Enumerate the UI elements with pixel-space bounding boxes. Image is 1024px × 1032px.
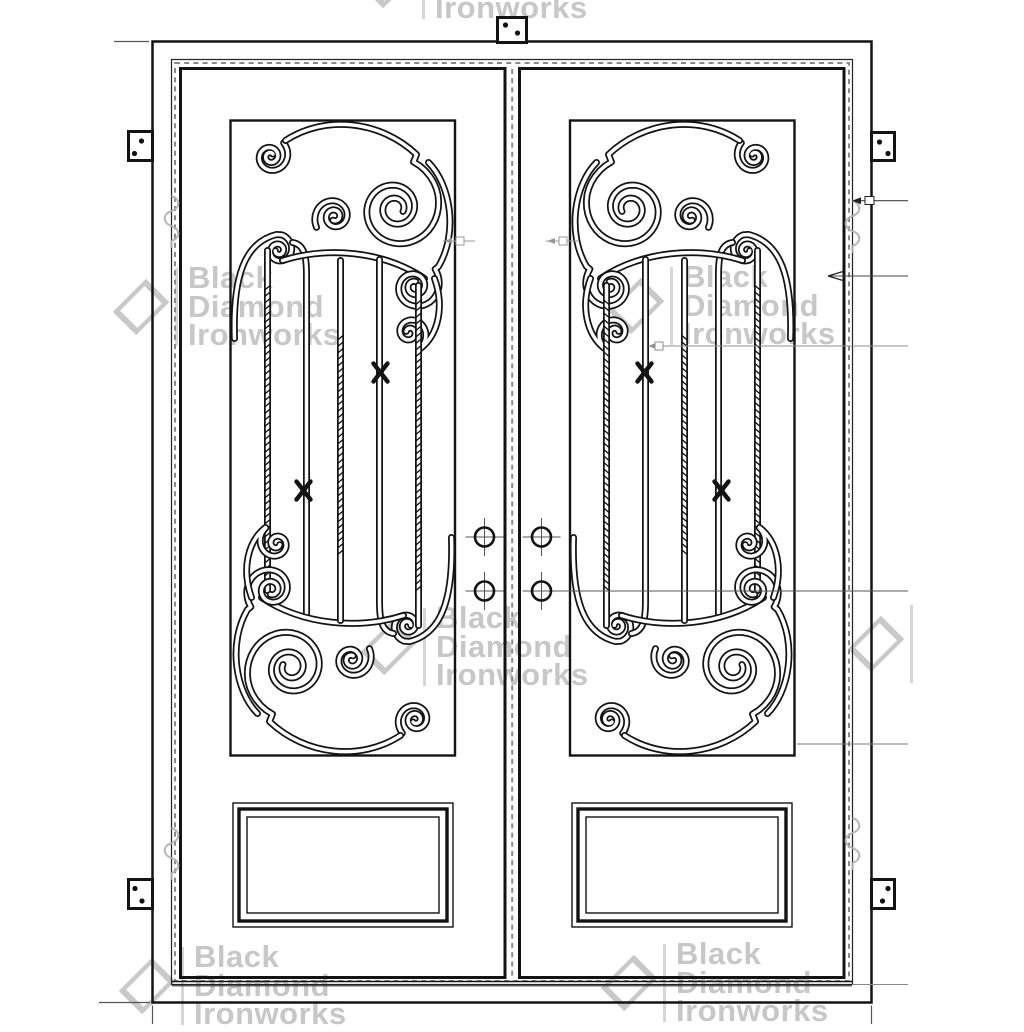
left-bottom-panel-mid bbox=[239, 809, 447, 921]
hinge-plate-icon bbox=[129, 880, 153, 909]
leader-lines bbox=[443, 197, 908, 985]
arrowhead-icon bbox=[547, 238, 555, 244]
hinge-plates bbox=[129, 18, 895, 909]
door-leaves bbox=[172, 69, 852, 986]
hinge-plate-icon bbox=[872, 880, 895, 909]
hinge-plate-icon bbox=[872, 133, 895, 161]
hinge-plate-icon bbox=[129, 132, 153, 161]
left-bottom-panel-inner bbox=[247, 817, 439, 913]
leader-door-edge bbox=[828, 272, 908, 281]
door-shop-drawing-page: { "watermark": { "line1": "Black", "line… bbox=[0, 0, 1024, 1024]
leader-weatherstrip bbox=[852, 197, 908, 205]
right-bottom-panel-mid bbox=[578, 809, 786, 921]
right-bottom-panel-outer bbox=[572, 803, 792, 927]
double-iron-door-drawing bbox=[0, 0, 1024, 1024]
left-bottom-panel-outer bbox=[233, 803, 453, 927]
top-bracket-icon bbox=[498, 18, 527, 43]
left-door-scrollwork bbox=[234, 124, 451, 751]
right-door-scrollwork bbox=[573, 124, 790, 751]
right-bottom-panel-inner bbox=[586, 817, 778, 913]
